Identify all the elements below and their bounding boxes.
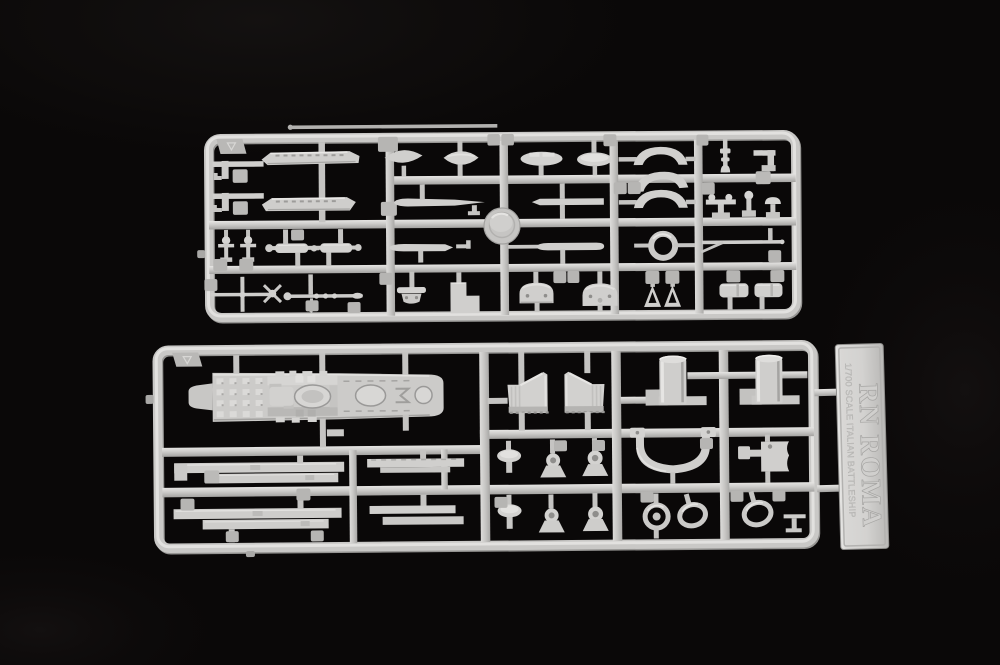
svg-text:RN ROMA: RN ROMA xyxy=(853,383,888,529)
